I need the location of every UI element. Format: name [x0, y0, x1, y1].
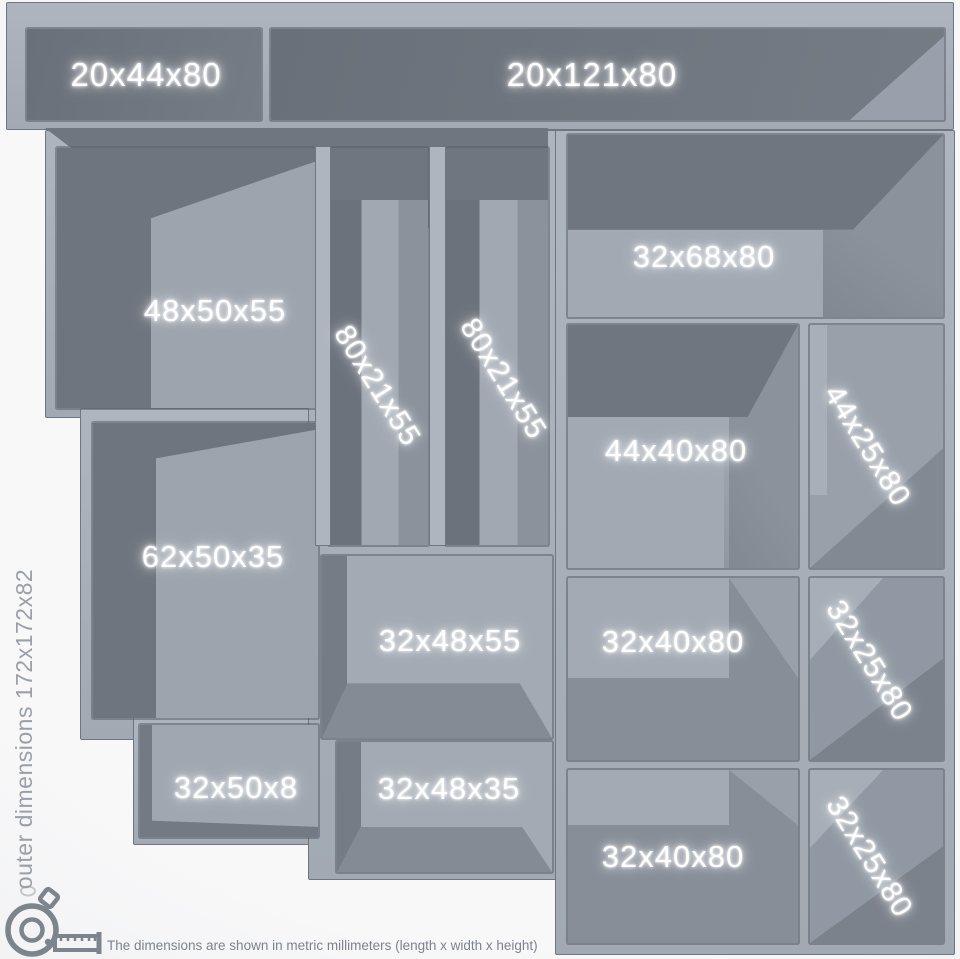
- dimension-label: 44x40x80: [605, 433, 747, 469]
- dimension-label: 20x121x80: [507, 56, 677, 94]
- outer-dimensions-note: outer dimensions 172x172x82: [11, 559, 37, 899]
- dimension-label: 48x50x55: [144, 293, 286, 329]
- organizer-render: 20x44x80 20x121x80 48x50x55 80x21x55 80x…: [0, 0, 960, 959]
- compartment-32x68x80: [568, 135, 943, 317]
- dimension-label: 62x50x35: [142, 539, 284, 575]
- slot-partition-right: [429, 146, 446, 546]
- dimension-label: 32x48x55: [379, 623, 521, 659]
- dimension-label: 32x40x80: [602, 839, 744, 875]
- compartment-32x40x80-mid: [568, 578, 798, 760]
- caption: The dimensions are shown in metric milli…: [107, 938, 538, 953]
- slot-partition-left: [315, 146, 331, 546]
- dimension-label: 32x68x80: [633, 239, 775, 275]
- dimension-label: 20x44x80: [70, 56, 221, 94]
- tape-measure-icon: [2, 884, 108, 958]
- dimension-label: 32x40x80: [602, 624, 744, 660]
- compartment-48x50x55: [57, 148, 318, 408]
- dimension-label: 32x48x35: [378, 771, 520, 807]
- compartment-32x48x35: [337, 742, 552, 872]
- dimension-label: 32x50x8: [174, 770, 298, 806]
